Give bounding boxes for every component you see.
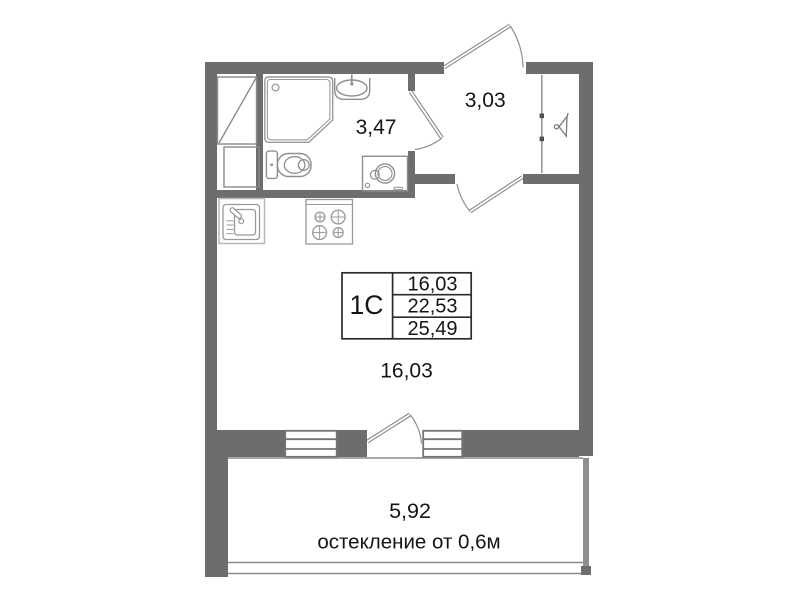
svg-text:1С: 1С <box>350 290 384 320</box>
svg-text:3,03: 3,03 <box>465 89 506 112</box>
svg-text:25,49: 25,49 <box>407 318 457 340</box>
svg-text:16,03: 16,03 <box>380 360 433 383</box>
svg-text:22,53: 22,53 <box>407 296 457 318</box>
svg-text:остекление от 0,6м: остекление от 0,6м <box>317 531 500 554</box>
svg-text:16,03: 16,03 <box>407 274 457 296</box>
svg-text:5,92: 5,92 <box>389 499 431 523</box>
svg-text:3,47: 3,47 <box>356 116 397 139</box>
